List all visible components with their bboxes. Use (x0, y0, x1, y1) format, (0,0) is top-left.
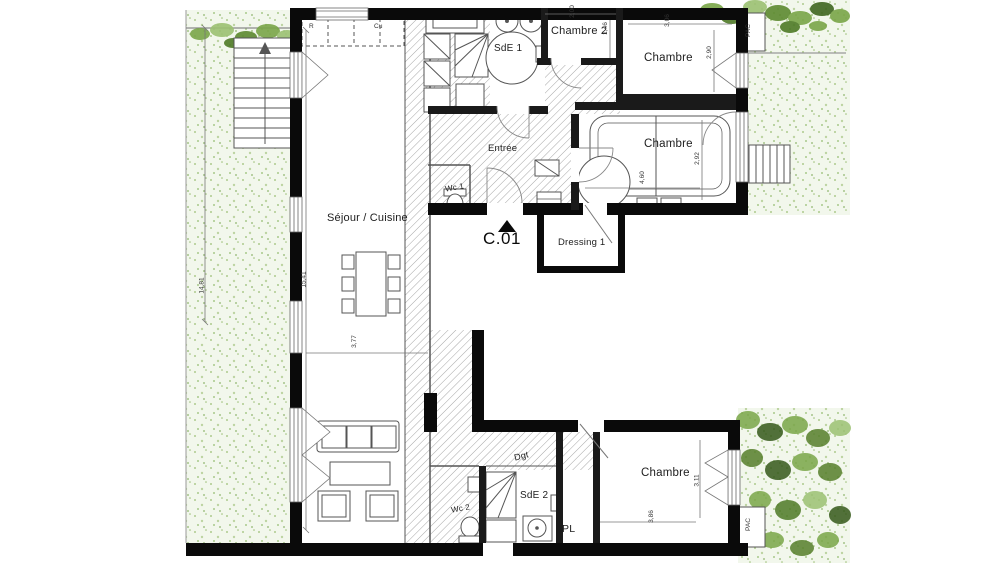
exterior-stair-left (234, 38, 296, 148)
dim-chambre-top-width: 3,06 (664, 14, 671, 27)
dim-chambre-top-depth: 2,90 (706, 46, 713, 59)
dining-table-set (342, 252, 400, 316)
room-label-chambre-bottom: Chambre (641, 467, 690, 479)
dim-chambre-bottom-width: 3,86 (648, 510, 655, 523)
dim-garden-height: 14,81 (199, 277, 206, 293)
floor-plan-canvas: Séjour / Cuisine SdE 1 Chambre 2 Chambre… (0, 0, 1000, 563)
room-label-sde1: SdE 1 (494, 43, 522, 54)
room-label-dressing: Dressing 1 (558, 237, 605, 248)
dim-sejour-width: 3,77 (351, 335, 358, 348)
unit-number-label: C.01 (483, 229, 521, 249)
pac-top-label: PAC (745, 24, 752, 37)
bedroom-mid-furniture (578, 116, 730, 213)
room-label-chambre-top: Chambre (644, 52, 693, 64)
room-label-sde2: SdE 2 (520, 490, 548, 501)
dim-chambre-mid-depth: 2,92 (694, 152, 701, 165)
dim-sejour-height: 15,41 (301, 271, 308, 287)
pac-bottom-label: PAC (745, 518, 752, 531)
sde2-fixtures (486, 472, 559, 542)
floor-plan-drawing (0, 0, 1000, 563)
room-label-chambre-mid: Chambre (644, 138, 693, 150)
fridge-label: R (309, 23, 314, 30)
dim-chambre-bottom-depth: 3,11 (694, 474, 701, 486)
cooking-label: Cu (374, 23, 383, 30)
dim-chambre2-width: 2,00 (569, 5, 576, 18)
room-label-chambre2: Chambre 2 (551, 25, 607, 37)
exterior-stair-right (742, 145, 790, 183)
room-label-sejour: Séjour / Cuisine (327, 212, 408, 224)
dim-chambre2-depth: 1,46 (602, 22, 609, 35)
living-room-furniture (317, 421, 399, 521)
dim-chambre-mid-width: 4,60 (639, 171, 646, 184)
pac-unit-bottom (739, 507, 765, 547)
room-label-entree: Entrée (488, 143, 517, 154)
room-label-pl: PL (562, 523, 575, 535)
